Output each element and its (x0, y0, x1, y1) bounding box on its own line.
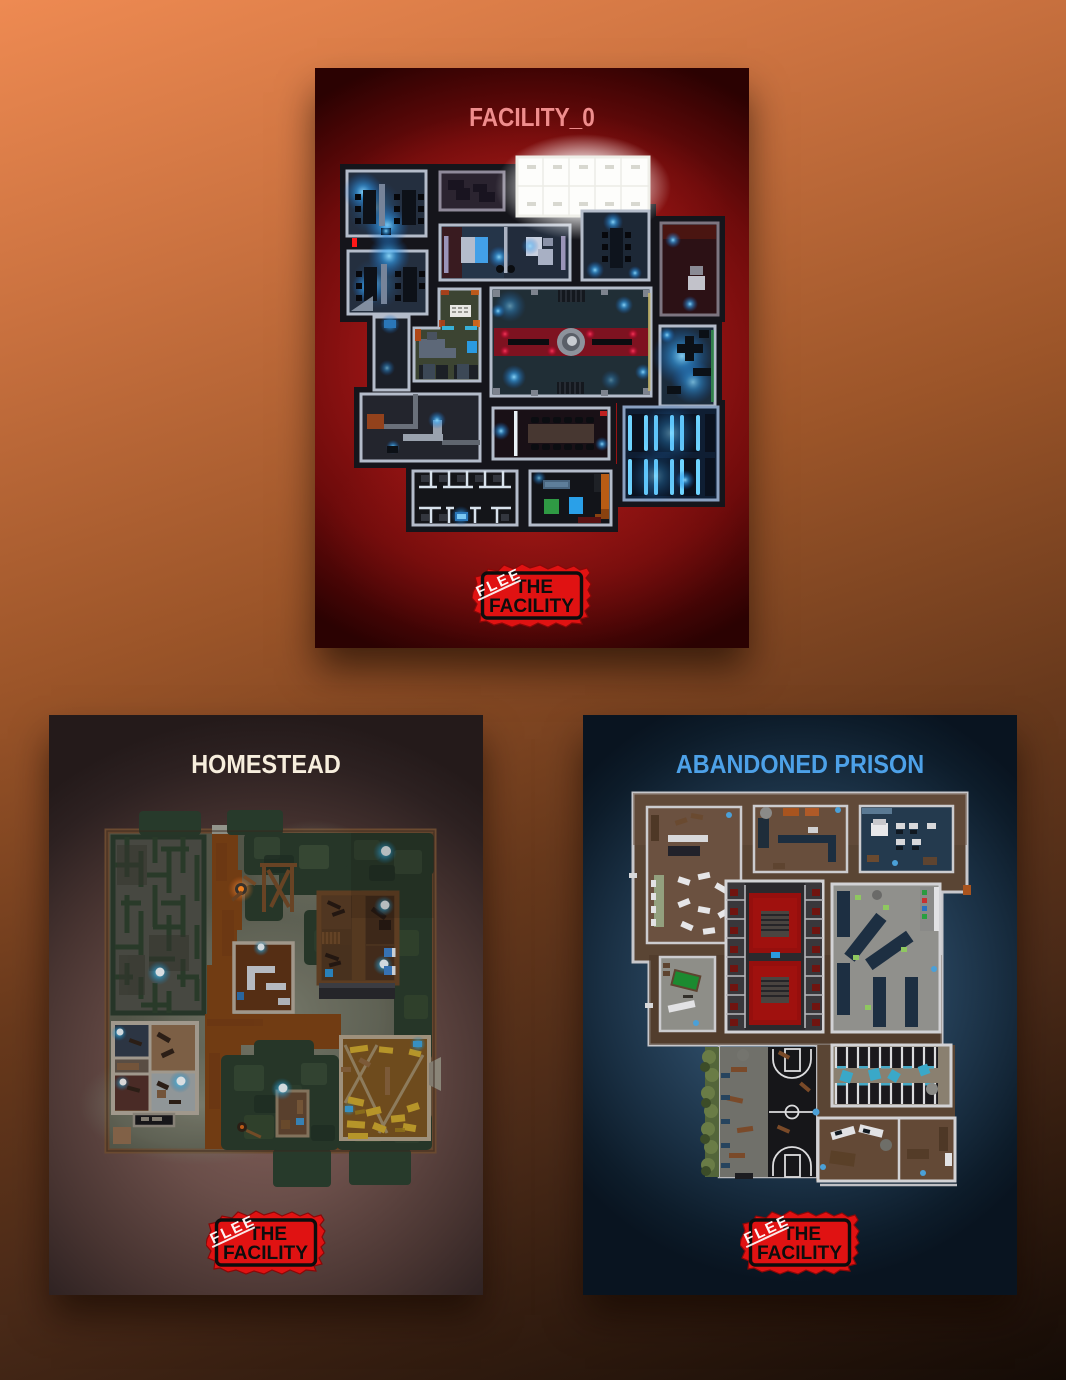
svg-text:FACILITY: FACILITY (757, 1243, 842, 1264)
svg-text:FACILITY: FACILITY (489, 596, 574, 617)
svg-text:FACILITY: FACILITY (223, 1243, 308, 1264)
